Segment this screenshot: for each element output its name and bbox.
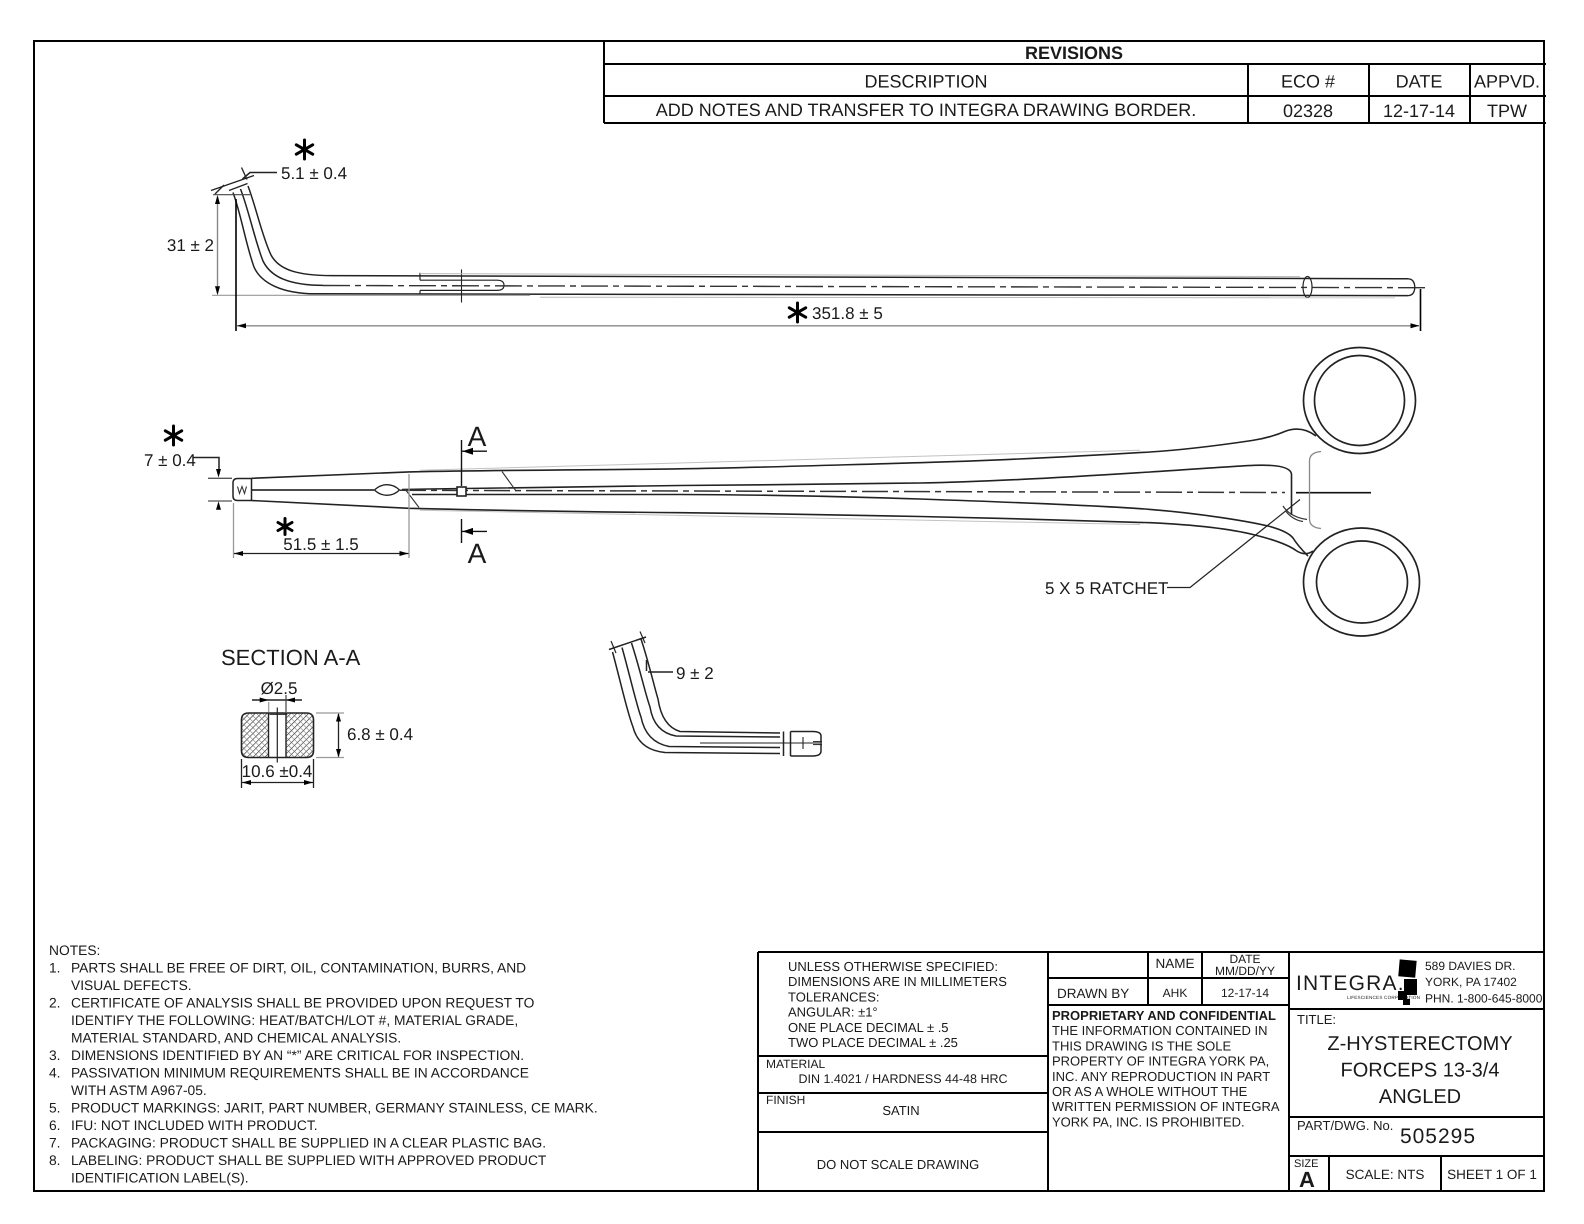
svg-text:IDENTIFY THE FOLLOWING: HEAT/B: IDENTIFY THE FOLLOWING: HEAT/BATCH/LOT #… xyxy=(71,1013,518,1028)
svg-text:9 ± 2: 9 ± 2 xyxy=(676,664,714,683)
svg-text:LABELING: PRODUCT SHALL BE SUP: LABELING: PRODUCT SHALL BE SUPPLIED WITH… xyxy=(71,1153,547,1168)
svg-text:DIMENSIONS ARE IN MILLIMETERS: DIMENSIONS ARE IN MILLIMETERS xyxy=(788,974,1007,989)
svg-text:APPVD.: APPVD. xyxy=(1474,72,1540,92)
svg-text:TITLE:: TITLE: xyxy=(1297,1012,1336,1027)
svg-text:WITH ASTM A967-05.: WITH ASTM A967-05. xyxy=(71,1083,207,1098)
svg-text:Ø2.5: Ø2.5 xyxy=(261,679,298,698)
svg-text:SECTION A-A: SECTION A-A xyxy=(221,645,361,670)
svg-text:CERTIFICATE OF ANALYSIS SHALL: CERTIFICATE OF ANALYSIS SHALL BE PROVIDE… xyxy=(71,996,535,1011)
svg-text:DATE: DATE xyxy=(1396,72,1443,92)
svg-text:NOTES:: NOTES: xyxy=(49,943,100,958)
svg-text:THE INFORMATION CONTAINED IN: THE INFORMATION CONTAINED IN xyxy=(1052,1023,1267,1038)
svg-text:IDENTIFICATION LABEL(S).: IDENTIFICATION LABEL(S). xyxy=(71,1171,249,1186)
svg-text:MM/DD/YY: MM/DD/YY xyxy=(1215,964,1275,978)
svg-text:THIS DRAWING IS THE SOLE: THIS DRAWING IS THE SOLE xyxy=(1052,1038,1231,1053)
svg-text:DO NOT SCALE DRAWING: DO NOT SCALE DRAWING xyxy=(817,1157,980,1172)
svg-text:ADD NOTES AND TRANSFER TO INTE: ADD NOTES AND TRANSFER TO INTEGRA DRAWIN… xyxy=(656,100,1196,120)
svg-text:SCALE: NTS: SCALE: NTS xyxy=(1346,1167,1425,1182)
svg-text:INTEGRA.: INTEGRA. xyxy=(1296,972,1405,995)
svg-text:31 ± 2: 31 ± 2 xyxy=(167,236,214,255)
svg-text:PASSIVATION MINIMUM REQUIREMEN: PASSIVATION MINIMUM REQUIREMENTS SHALL B… xyxy=(71,1066,529,1081)
svg-text:SHEET 1 OF 1: SHEET 1 OF 1 xyxy=(1447,1167,1537,1182)
svg-text:ANGULAR: ±1°: ANGULAR: ±1° xyxy=(788,1005,878,1020)
svg-text:IFU: NOT INCLUDED WITH PRODUCT: IFU: NOT INCLUDED WITH PRODUCT. xyxy=(71,1118,318,1133)
svg-text:DIN 1.4021 / HARDNESS 44-48 HR: DIN 1.4021 / HARDNESS 44-48 HRC xyxy=(798,1072,1007,1086)
svg-text:ANGLED: ANGLED xyxy=(1379,1086,1461,1108)
svg-text:REVISIONS: REVISIONS xyxy=(1025,43,1123,63)
svg-text:YORK, PA 17402: YORK, PA 17402 xyxy=(1425,975,1517,989)
svg-text:10.6 ±0.4: 10.6 ±0.4 xyxy=(242,762,313,781)
svg-text:DIMENSIONS IDENTIFIED BY AN “*: DIMENSIONS IDENTIFIED BY AN “*” ARE CRIT… xyxy=(71,1048,524,1063)
svg-text:DESCRIPTION: DESCRIPTION xyxy=(864,72,987,92)
svg-text:5.1 ± 0.4: 5.1 ± 0.4 xyxy=(281,164,347,183)
svg-text:PARTS SHALL BE FREE OF DIRT, O: PARTS SHALL BE FREE OF DIRT, OIL, CONTAM… xyxy=(71,961,526,976)
svg-text:INC. ANY REPRODUCTION IN PART: INC. ANY REPRODUCTION IN PART xyxy=(1052,1069,1270,1084)
svg-text:FORCEPS 13-3/4: FORCEPS 13-3/4 xyxy=(1341,1060,1500,1082)
svg-text:TOLERANCES:: TOLERANCES: xyxy=(788,989,880,1004)
svg-text:FINISH: FINISH xyxy=(766,1093,805,1107)
svg-text:5 X 5 RATCHET: 5 X 5 RATCHET xyxy=(1045,579,1168,598)
svg-text:6.: 6. xyxy=(49,1118,61,1133)
svg-text:A: A xyxy=(1299,1167,1315,1192)
svg-text:51.5 ± 1.5: 51.5 ± 1.5 xyxy=(283,535,359,554)
svg-text:PRODUCT MARKINGS: JARIT, PART: PRODUCT MARKINGS: JARIT, PART NUMBER, GE… xyxy=(71,1101,598,1116)
svg-text:WRITTEN PERMISSION OF INTEGRA: WRITTEN PERMISSION OF INTEGRA xyxy=(1052,1099,1280,1114)
svg-text:TWO PLACE DECIMAL ± .25: TWO PLACE DECIMAL ± .25 xyxy=(788,1035,958,1050)
svg-text:PHN. 1-800-645-8000: PHN. 1-800-645-8000 xyxy=(1425,992,1543,1006)
svg-text:5.: 5. xyxy=(49,1101,61,1116)
svg-text:589 DAVIES DR.: 589 DAVIES DR. xyxy=(1425,959,1515,973)
svg-text:02328: 02328 xyxy=(1283,101,1333,121)
svg-text:4.: 4. xyxy=(49,1066,61,1081)
svg-text:7.: 7. xyxy=(49,1136,61,1151)
svg-text:6.8 ± 0.4: 6.8 ± 0.4 xyxy=(347,725,413,744)
svg-text:8.: 8. xyxy=(49,1153,61,1168)
svg-text:NAME: NAME xyxy=(1155,956,1194,971)
svg-text:MATERIAL STANDARD, AND CHEMICA: MATERIAL STANDARD, AND CHEMICAL ANALYSIS… xyxy=(71,1031,401,1046)
svg-text:1.: 1. xyxy=(49,961,61,976)
svg-text:ONE PLACE DECIMAL ± .5: ONE PLACE DECIMAL ± .5 xyxy=(788,1020,949,1035)
svg-text:OR AS A WHOLE WITHOUT THE: OR AS A WHOLE WITHOUT THE xyxy=(1052,1084,1248,1099)
svg-text:PROPRIETARY AND CONFIDENTIAL: PROPRIETARY AND CONFIDENTIAL xyxy=(1052,1008,1276,1023)
svg-text:A: A xyxy=(468,538,487,569)
svg-text:A: A xyxy=(468,421,487,452)
svg-text:DRAWN BY: DRAWN BY xyxy=(1057,986,1129,1001)
svg-text:PROPERTY OF INTEGRA YORK PA,: PROPERTY OF INTEGRA YORK PA, xyxy=(1052,1054,1269,1069)
svg-text:351.8 ± 5: 351.8 ± 5 xyxy=(812,304,883,323)
svg-text:PART/DWG. No.: PART/DWG. No. xyxy=(1297,1118,1393,1133)
svg-text:3.: 3. xyxy=(49,1048,61,1063)
svg-text:Z-HYSTERECTOMY: Z-HYSTERECTOMY xyxy=(1327,1033,1512,1055)
svg-text:YORK PA, INC. IS PROHIBITED.: YORK PA, INC. IS PROHIBITED. xyxy=(1052,1114,1245,1129)
svg-text:12-17-14: 12-17-14 xyxy=(1383,101,1455,121)
svg-text:505295: 505295 xyxy=(1400,1125,1476,1148)
svg-text:TPW: TPW xyxy=(1487,101,1527,121)
svg-text:SATIN: SATIN xyxy=(882,1103,919,1118)
svg-text:7 ± 0.4: 7 ± 0.4 xyxy=(144,451,196,470)
svg-text:MATERIAL: MATERIAL xyxy=(766,1057,825,1071)
svg-text:ECO #: ECO # xyxy=(1281,72,1335,92)
svg-text:12-17-14: 12-17-14 xyxy=(1221,986,1269,1000)
svg-text:UNLESS OTHERWISE SPECIFIED:: UNLESS OTHERWISE SPECIFIED: xyxy=(788,959,998,974)
svg-text:2.: 2. xyxy=(49,996,61,1011)
svg-text:PACKAGING: PRODUCT SHALL BE S: PACKAGING: PRODUCT SHALL BE SUPPLIED IN … xyxy=(71,1136,546,1151)
svg-text:AHK: AHK xyxy=(1163,986,1188,1000)
svg-text:VISUAL DEFECTS.: VISUAL DEFECTS. xyxy=(71,978,192,993)
